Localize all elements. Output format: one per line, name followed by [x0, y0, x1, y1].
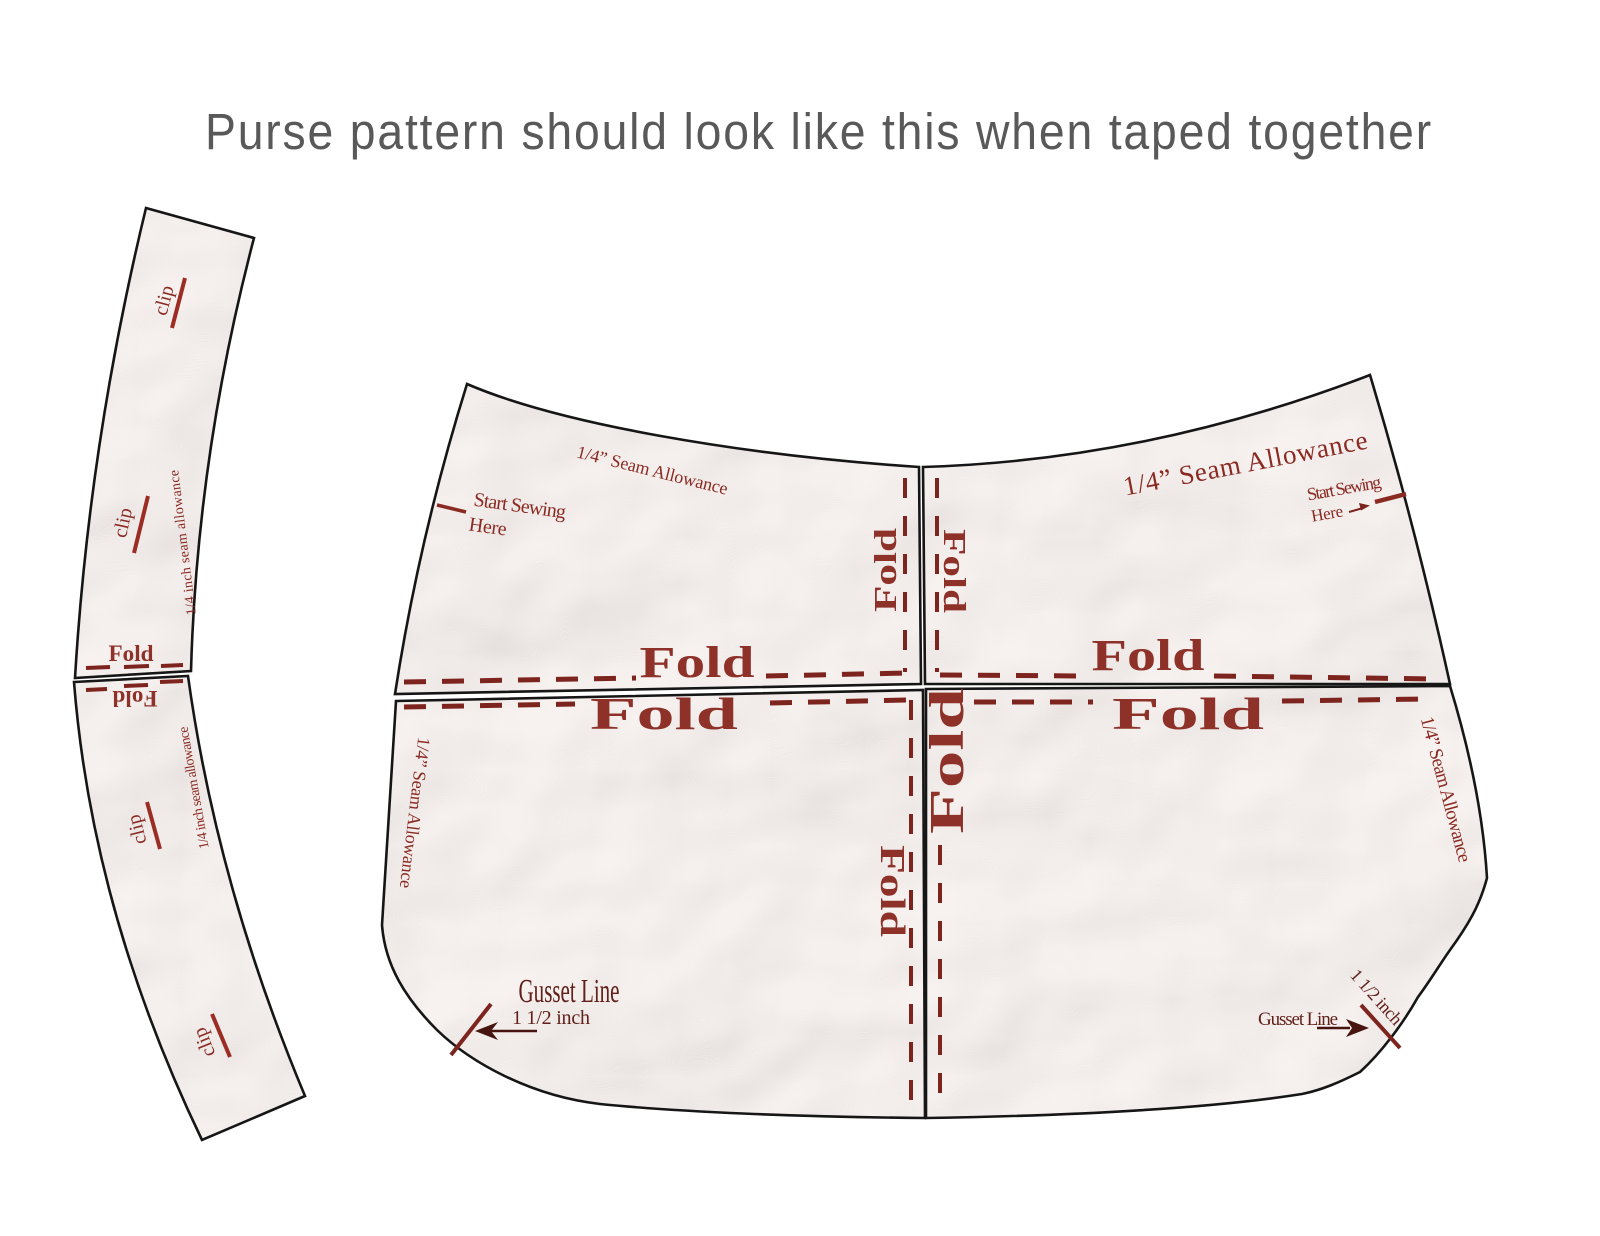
svg-text:Fold: Fold: [867, 528, 903, 612]
svg-text:Gusset Line: Gusset Line: [519, 973, 620, 1010]
svg-text:Fold: Fold: [919, 688, 974, 834]
svg-text:Fold: Fold: [1112, 688, 1265, 739]
svg-text:Fold: Fold: [937, 529, 973, 613]
svg-text:Fold: Fold: [873, 845, 912, 938]
svg-text:Fold: Fold: [112, 686, 157, 711]
svg-text:Fold: Fold: [640, 638, 755, 687]
svg-text:1 1/2 inch: 1 1/2 inch: [512, 1007, 590, 1029]
svg-text:Purse pattern should look like: Purse pattern should look like this when…: [205, 103, 1433, 160]
svg-text:Fold: Fold: [109, 641, 154, 666]
svg-text:Fold: Fold: [590, 688, 739, 739]
svg-text:Fold: Fold: [1092, 631, 1205, 680]
